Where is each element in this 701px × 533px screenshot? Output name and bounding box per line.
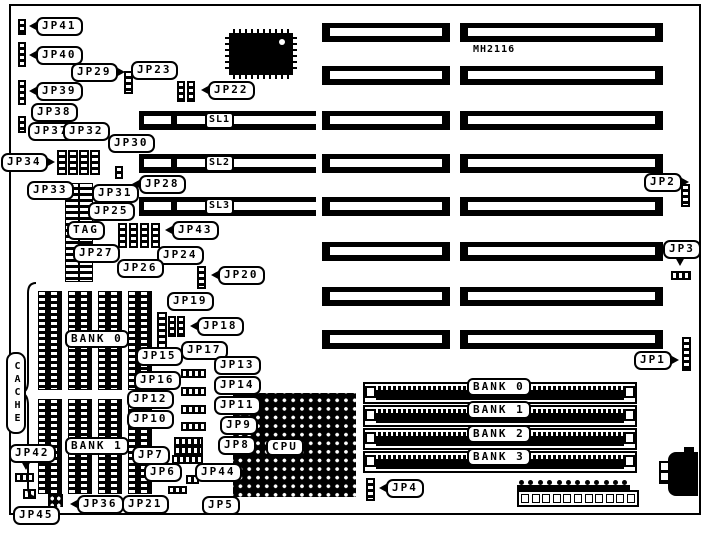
slot-contact-stripe <box>144 116 171 124</box>
jumper-block-icon <box>174 437 203 446</box>
callout-pointer-icon <box>116 67 125 77</box>
jumper-block-icon <box>18 116 26 133</box>
jumper-block-icon <box>18 19 26 35</box>
label-bank-1: BANK 1 <box>467 401 531 419</box>
callout-jp12: JP12 <box>127 390 174 409</box>
isa-slot <box>322 287 450 306</box>
callout-jp45: JP45 <box>13 506 60 525</box>
callout-jp19: JP19 <box>167 292 214 311</box>
callout-jp18: JP18 <box>197 317 244 336</box>
slot-contact-stripe <box>330 292 442 300</box>
slot-contact-stripe <box>177 159 317 167</box>
slot-contact-stripe <box>468 28 655 36</box>
callout-jp36: JP36 <box>77 495 124 514</box>
isa-slot <box>460 154 663 173</box>
jumper-block-icon <box>57 150 67 175</box>
power-terminals-icon <box>517 490 639 507</box>
isa-slot <box>322 197 450 216</box>
cache-sram-chip <box>38 291 62 390</box>
qfp-pins-bottom-icon <box>233 74 289 79</box>
callout-jp5: JP5 <box>202 496 240 515</box>
slot-contact-stripe <box>468 116 655 124</box>
callout-jp32: JP32 <box>63 122 110 141</box>
qfp-pins-left-icon <box>225 37 230 71</box>
jumper-block-icon <box>181 422 206 431</box>
power-pins-icon <box>519 480 627 485</box>
slot-contact-stripe <box>330 335 442 343</box>
jumper-block-icon <box>366 478 375 501</box>
slot-contact-stripe <box>144 202 171 210</box>
isa-slot <box>322 23 450 42</box>
callout-jp42: JP42 <box>9 444 56 463</box>
callout-jp22: JP22 <box>208 81 255 100</box>
callout-pointer-icon <box>379 483 388 493</box>
keyboard-connector-pin-icon <box>661 463 668 470</box>
keyboard-connector-top-icon <box>684 447 694 454</box>
isa-slot <box>322 330 450 349</box>
jumper-block-icon <box>118 223 127 248</box>
jumper-block-icon <box>681 184 690 207</box>
simm-clip-icon <box>624 455 635 467</box>
jumper-block-icon <box>177 316 185 337</box>
slot-contact-stripe <box>177 116 317 124</box>
isa-slot <box>322 111 450 130</box>
callout-pointer-icon <box>680 177 689 187</box>
cache-area-label: CACHE <box>6 352 26 434</box>
jumper-block-icon <box>18 80 26 105</box>
jumper-block-icon <box>18 42 26 67</box>
callout-jp13: JP13 <box>214 356 261 375</box>
label-bank-0: BANK 0 <box>65 330 129 348</box>
slot-contact-stripe <box>468 159 655 167</box>
callout-jp23: JP23 <box>131 61 178 80</box>
jumper-block-icon <box>682 337 691 371</box>
callout-jp25: JP25 <box>88 202 135 221</box>
callout-pointer-icon <box>190 321 199 331</box>
callout-pointer-icon <box>21 461 31 470</box>
simm-clip-icon <box>624 432 635 444</box>
slot-contact-stripe <box>177 202 317 210</box>
chip-pins-icon <box>51 292 57 389</box>
jumper-block-icon <box>90 150 100 175</box>
simm-clip-icon <box>624 386 635 398</box>
callout-jp11: JP11 <box>214 396 261 415</box>
jumper-block-icon <box>115 166 123 179</box>
label-cpu: CPU <box>266 438 304 456</box>
callout-pointer-icon <box>29 50 38 60</box>
callout-pointer-icon <box>46 157 55 167</box>
slot-contact-stripe <box>330 159 442 167</box>
callout-pointer-icon <box>675 257 685 266</box>
qfp-pins-right-icon <box>292 37 297 71</box>
callout-jp9: JP9 <box>220 416 258 435</box>
callout-jp40: JP40 <box>36 46 83 65</box>
qfp-pins-top-icon <box>233 29 289 34</box>
callout-pointer-icon <box>70 499 79 509</box>
jumper-block-icon <box>151 223 160 248</box>
callout-pointer-icon <box>670 355 679 365</box>
simm-clip-icon <box>365 432 376 444</box>
jumper-block-icon <box>174 446 203 455</box>
callout-jp3: JP3 <box>663 240 701 259</box>
jumper-block-icon <box>197 266 206 289</box>
callout-jp2: JP2 <box>644 173 682 192</box>
callout-jp38: JP38 <box>31 103 78 122</box>
label-bank-1: BANK 1 <box>65 437 129 455</box>
simm-clip-icon <box>365 409 376 421</box>
isa-slot <box>460 287 663 306</box>
callout-jp27: JP27 <box>73 244 120 263</box>
label-sl3: SL3 <box>205 198 234 215</box>
callout-pointer-icon <box>29 21 38 31</box>
simm-clip-icon <box>624 409 635 421</box>
callout-jp6: JP6 <box>144 463 182 482</box>
simm-clip-icon <box>365 386 376 398</box>
slot-contact-stripe <box>330 247 442 255</box>
jumper-block-icon <box>187 81 195 102</box>
slot-contact-stripe <box>468 71 655 79</box>
callout-jp34: JP34 <box>1 153 48 172</box>
slot-contact-stripe <box>330 202 442 210</box>
callout-jp24: JP24 <box>157 246 204 265</box>
keyboard-connector-icon <box>668 452 698 496</box>
isa-slot <box>322 242 450 261</box>
isa-slot <box>460 23 663 42</box>
callout-jp28: JP28 <box>139 175 186 194</box>
jumper-block-icon <box>671 271 691 280</box>
callout-jp33: JP33 <box>27 181 74 200</box>
slot-contact-stripe <box>330 28 442 36</box>
isa-slot <box>460 111 663 130</box>
jumper-block-icon <box>177 81 185 102</box>
callout-jp20: JP20 <box>218 266 265 285</box>
jumper-block-icon <box>181 387 206 396</box>
isa-slot <box>460 242 663 261</box>
isa-slot <box>322 66 450 85</box>
callout-jp39: JP39 <box>36 82 83 101</box>
callout-tag: TAG <box>67 221 105 240</box>
slot-contact-stripe <box>330 116 442 124</box>
callout-jp43: JP43 <box>172 221 219 240</box>
label-bank-2: BANK 2 <box>467 425 531 443</box>
callout-jp4: JP4 <box>386 479 424 498</box>
qfp-chip-icon <box>229 33 293 75</box>
callout-pointer-icon <box>201 85 210 95</box>
slot-contact-stripe <box>330 71 442 79</box>
callout-pointer-icon <box>132 179 141 189</box>
isa-slot <box>460 330 663 349</box>
jumper-block-icon <box>157 312 167 350</box>
callout-pointer-icon <box>211 270 220 280</box>
slot-contact-stripe <box>468 247 655 255</box>
jumper-block-icon <box>181 369 206 378</box>
label-bank-3: BANK 3 <box>467 448 531 466</box>
isa-slot <box>322 154 450 173</box>
callout-jp1: JP1 <box>634 351 672 370</box>
label-bank-0: BANK 0 <box>467 378 531 396</box>
motherboard-diagram: MH2116 CACHE SL1SL2SL3BANK 0BANK 1BANK 0… <box>0 0 701 533</box>
slot-contact-stripe <box>468 202 655 210</box>
qfp-pin1-dot-icon <box>279 39 285 45</box>
callout-jp41: JP41 <box>36 17 83 36</box>
isa-slot <box>460 66 663 85</box>
callout-jp44: JP44 <box>195 463 242 482</box>
jumper-block-icon <box>68 150 78 175</box>
jumper-block-icon <box>79 150 89 175</box>
jumper-block-icon <box>168 486 187 494</box>
keyboard-connector-pin-icon <box>661 473 668 480</box>
callout-pointer-icon <box>165 225 174 235</box>
callout-jp26: JP26 <box>117 259 164 278</box>
callout-jp8: JP8 <box>218 436 256 455</box>
jumper-block-icon <box>140 223 149 248</box>
simm-clip-icon <box>365 455 376 467</box>
slot-contact-stripe <box>468 335 655 343</box>
callout-jp10: JP10 <box>127 410 174 429</box>
callout-jp15: JP15 <box>136 347 183 366</box>
label-sl1: SL1 <box>205 112 234 129</box>
chipset-part-number: MH2116 <box>473 44 515 55</box>
slot-contact-stripe <box>468 292 655 300</box>
callout-jp29: JP29 <box>71 63 118 82</box>
callout-jp14: JP14 <box>214 376 261 395</box>
label-sl2: SL2 <box>205 155 234 172</box>
callout-jp16: JP16 <box>134 371 181 390</box>
callout-jp21: JP21 <box>122 495 169 514</box>
isa-slot <box>460 197 663 216</box>
jumper-block-icon <box>129 223 138 248</box>
jumper-block-icon <box>181 405 206 414</box>
callout-pointer-icon <box>29 86 38 96</box>
jumper-block-icon <box>168 316 176 337</box>
slot-contact-stripe <box>144 159 171 167</box>
callout-jp30: JP30 <box>108 134 155 153</box>
